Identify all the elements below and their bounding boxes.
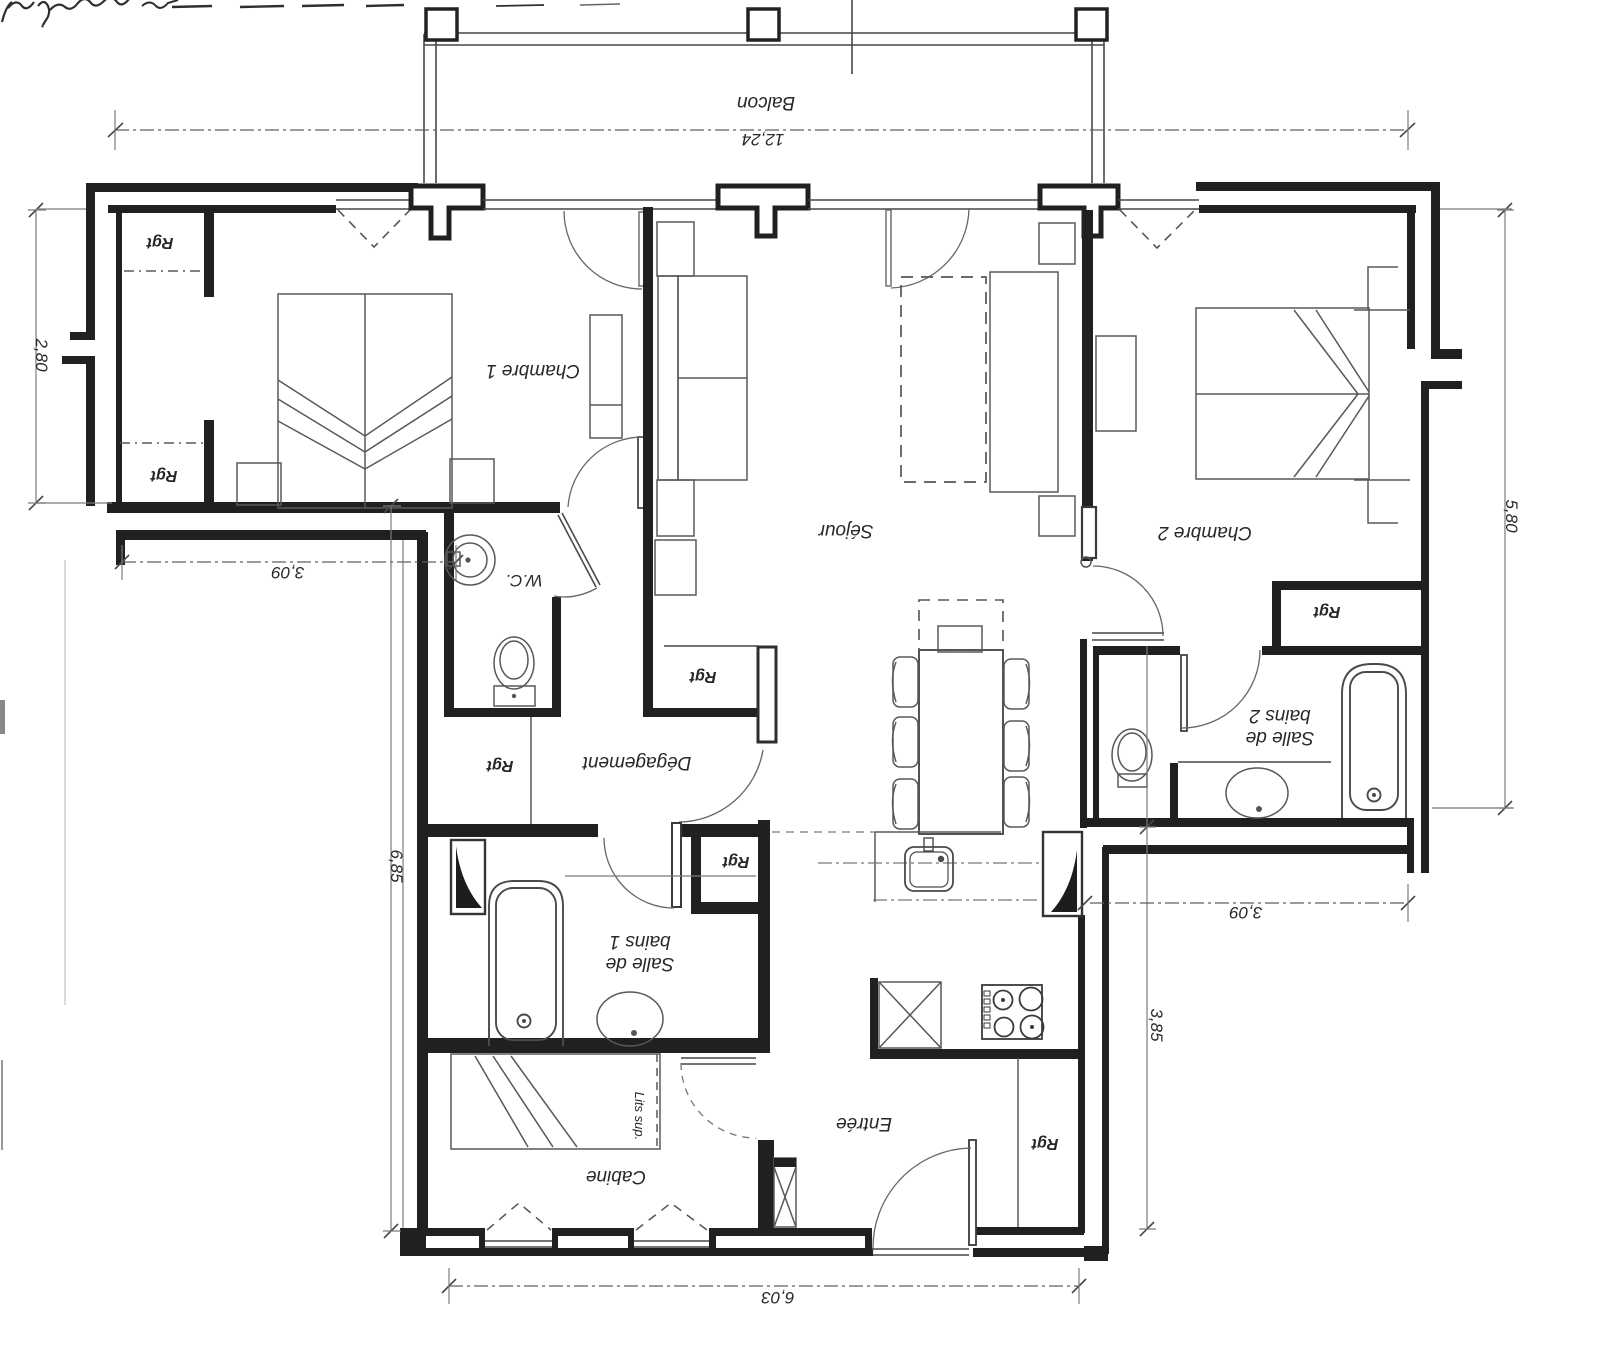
svg-text:3,85: 3,85 — [1147, 1008, 1166, 1042]
svg-text:Rgt: Rgt — [689, 668, 716, 685]
svg-text:2,80: 2,80 — [32, 337, 51, 372]
svg-text:Cabine: Cabine — [586, 1166, 646, 1187]
svg-text:Entrée: Entrée — [836, 1113, 892, 1134]
svg-text:Rgt: Rgt — [1313, 603, 1340, 620]
svg-text:Chambre 1: Chambre 1 — [486, 360, 580, 381]
svg-text:W.C.: W.C. — [505, 571, 542, 590]
svg-text:3,09: 3,09 — [271, 563, 305, 582]
svg-text:Lits sup.: Lits sup. — [632, 1092, 647, 1140]
svg-text:Chambre 2: Chambre 2 — [1158, 522, 1252, 543]
svg-text:6,03: 6,03 — [761, 1288, 795, 1307]
svg-text:Rgt: Rgt — [150, 467, 177, 484]
svg-text:Rgt: Rgt — [722, 853, 749, 870]
svg-text:Rgt: Rgt — [486, 757, 513, 774]
svg-text:12,24: 12,24 — [742, 130, 785, 149]
svg-text:Rgt: Rgt — [146, 234, 173, 251]
svg-text:Séjour: Séjour — [818, 520, 874, 541]
svg-text:3,09: 3,09 — [1229, 903, 1263, 922]
svg-text:Dégagement: Dégagement — [582, 752, 692, 773]
svg-text:Salle debains 1: Salle debains 1 — [606, 931, 675, 974]
svg-text:Rgt: Rgt — [1031, 1135, 1058, 1152]
svg-text:Salle debains 2: Salle debains 2 — [1246, 705, 1315, 748]
svg-text:Balcon: Balcon — [737, 92, 795, 113]
svg-text:5,80: 5,80 — [1502, 499, 1521, 533]
svg-text:6,85: 6,85 — [387, 849, 406, 883]
